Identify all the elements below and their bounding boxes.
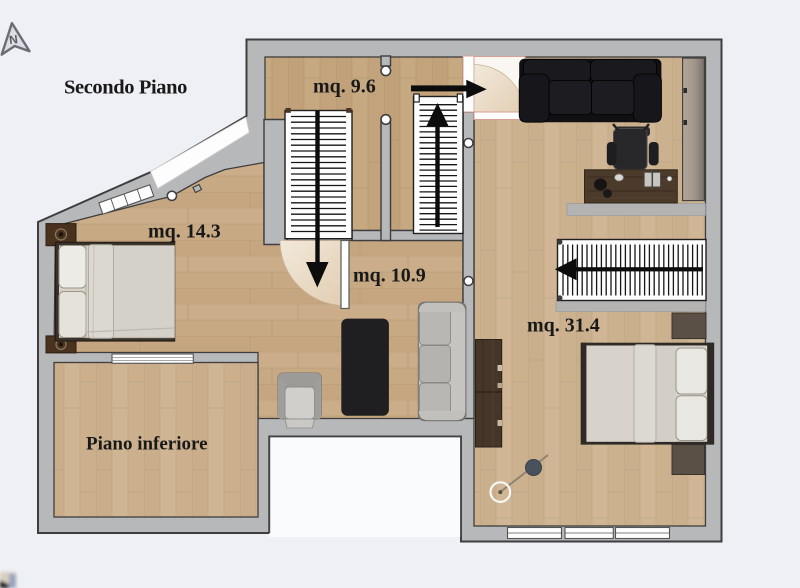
svg-text:mq. 14.3: mq. 14.3 [148,221,221,243]
svg-text:N: N [8,32,18,47]
svg-text:mq. 9.6: mq. 9.6 [313,76,376,98]
svg-text:mq. 10.9: mq. 10.9 [353,265,426,287]
svg-text:mq. 31.4: mq. 31.4 [527,315,600,337]
svg-text:Secondo Piano: Secondo Piano [64,77,187,99]
svg-text:Piano inferiore: Piano inferiore [86,434,208,455]
